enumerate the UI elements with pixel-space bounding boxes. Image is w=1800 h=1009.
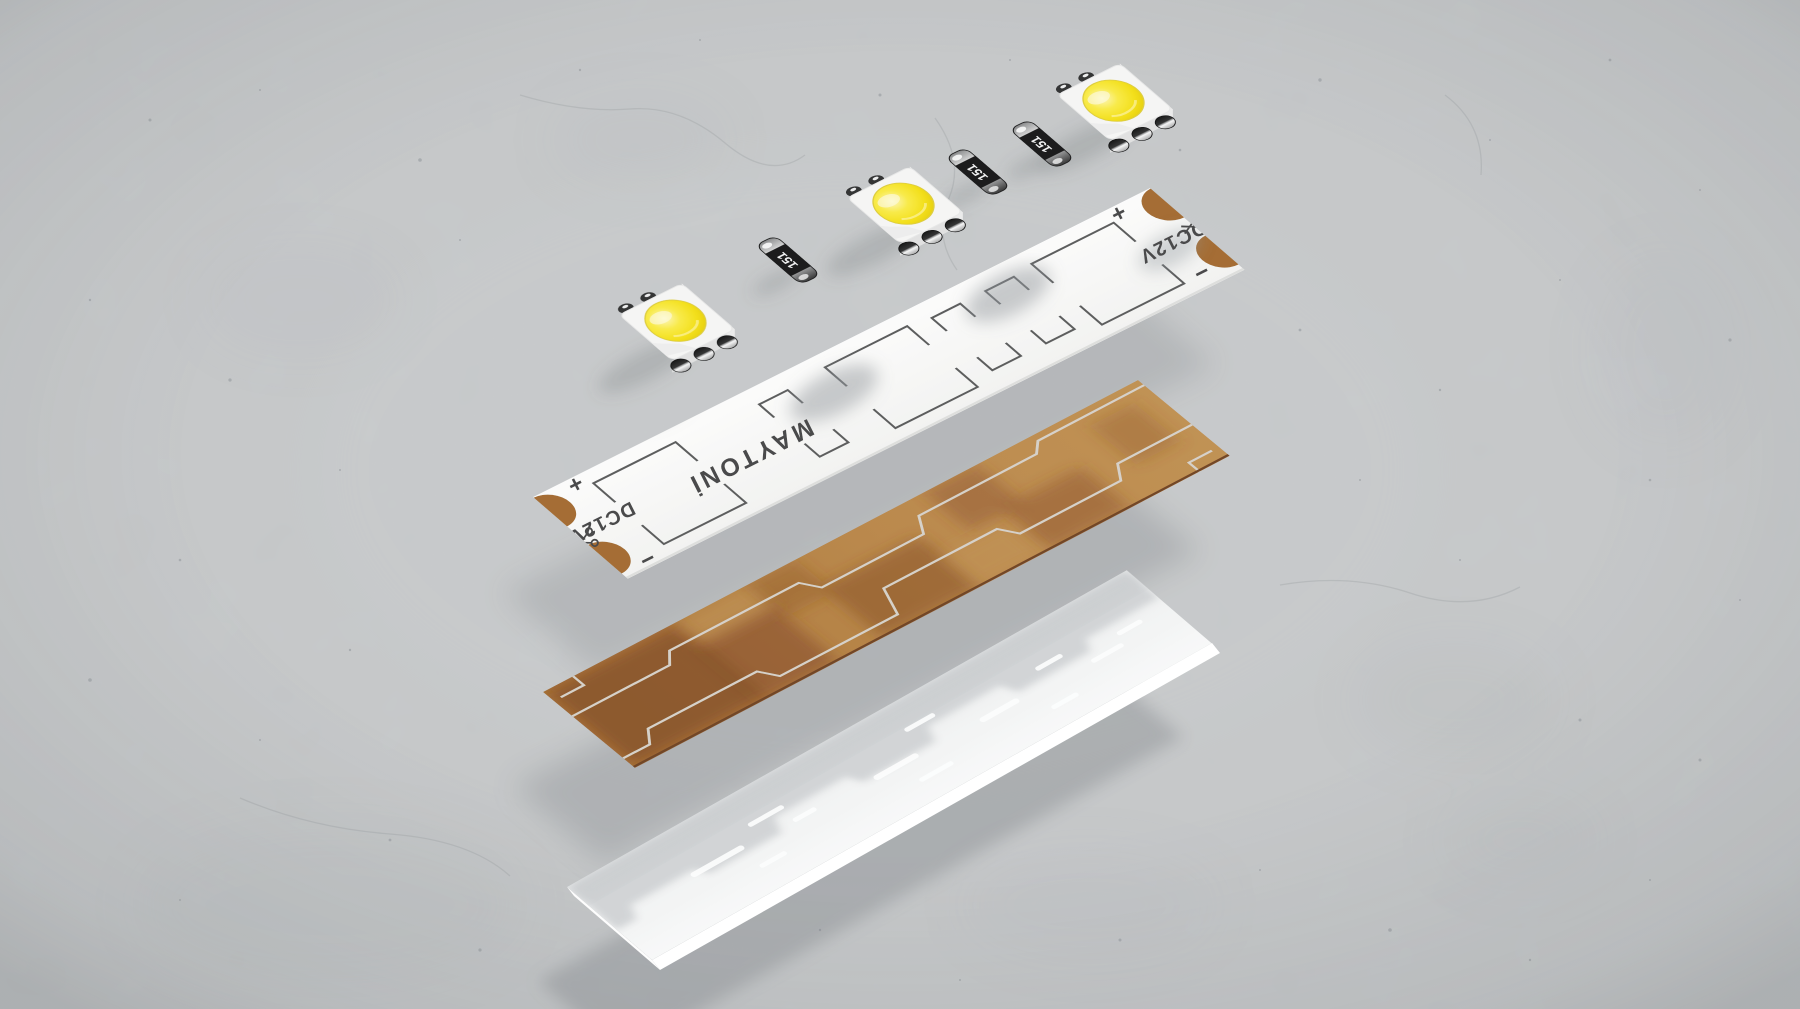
scene-canvas: MAYTONİ DC12V DC12V + + − − bbox=[0, 0, 1800, 1009]
led-strip-exploded-scene: MAYTONİ DC12V DC12V + + − − bbox=[0, 0, 1800, 1009]
grain-overlay bbox=[0, 0, 1800, 1009]
